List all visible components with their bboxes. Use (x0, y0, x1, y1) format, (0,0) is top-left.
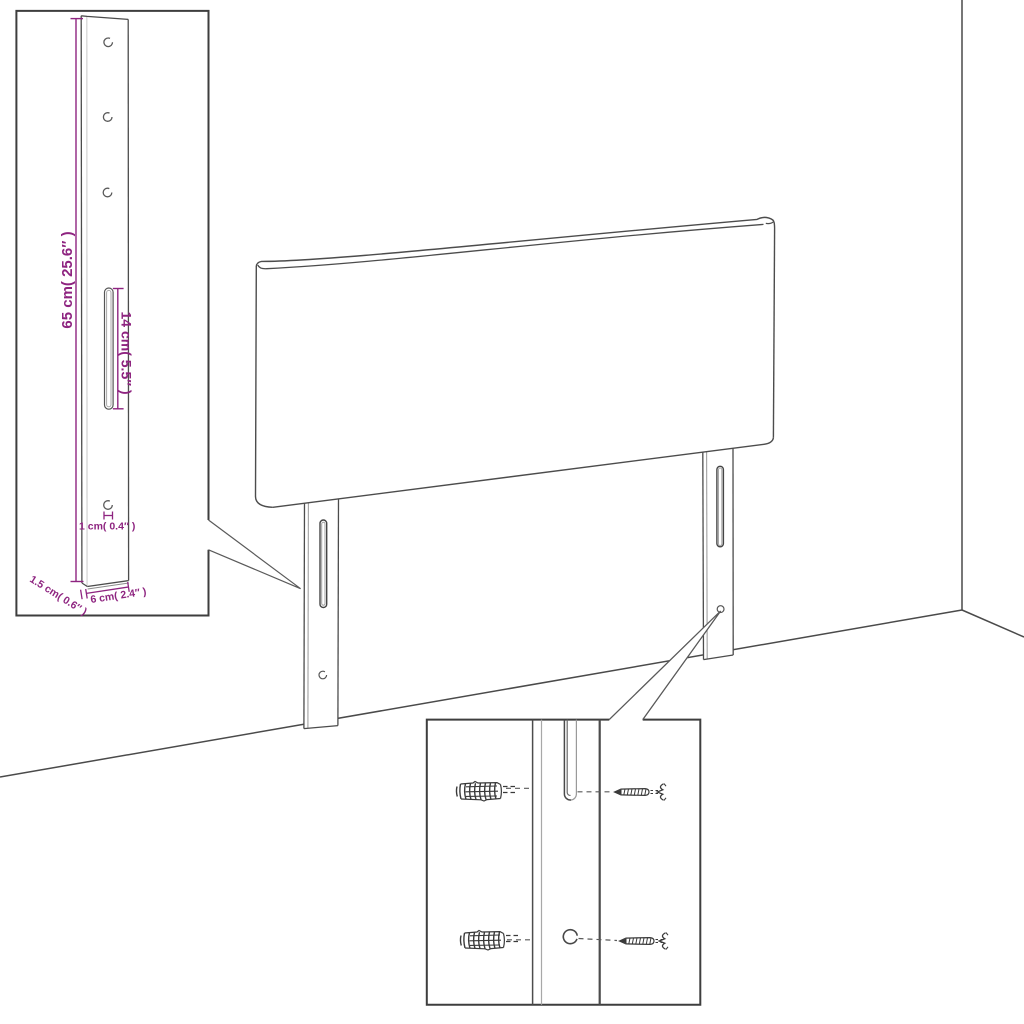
svg-text:65 cm( 25.6″ ): 65 cm( 25.6″ ) (59, 231, 76, 328)
svg-text:1 cm( 0.4″ ): 1 cm( 0.4″ ) (79, 521, 135, 533)
svg-text:14 cm( 5.5″ ): 14 cm( 5.5″ ) (119, 312, 135, 395)
